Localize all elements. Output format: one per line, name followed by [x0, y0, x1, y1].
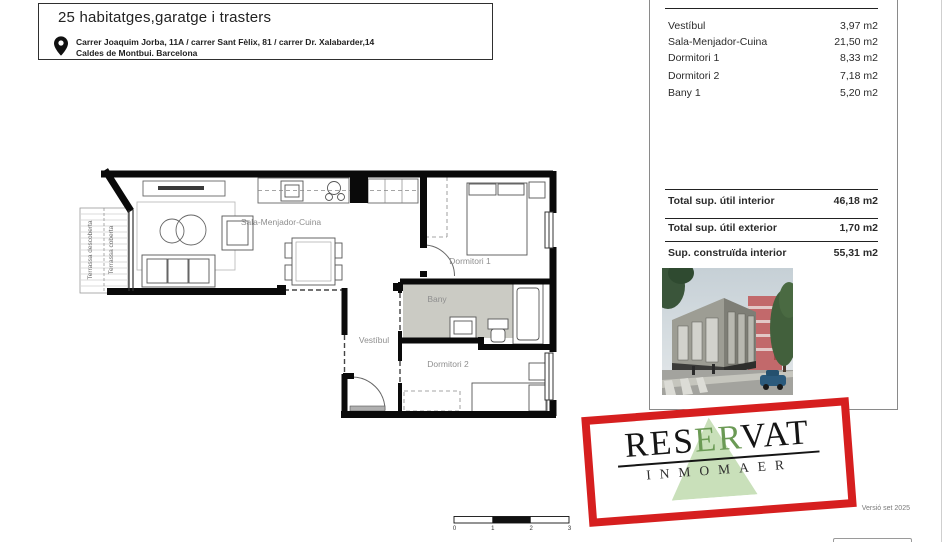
area-label: Sala-Menjador-Cuina — [668, 36, 767, 48]
area-value: 5,20 m2 — [840, 87, 878, 99]
rule-total-1 — [665, 189, 878, 190]
terrace: Terrassa descoberta Terrassa coberta — [80, 208, 128, 293]
total-value: 55,31 m2 — [834, 247, 878, 259]
rule-total-2 — [665, 218, 878, 219]
building-render-photo — [662, 268, 793, 395]
stamp-er: ER — [693, 417, 742, 459]
label-vestibul: Vestíbul — [359, 335, 389, 345]
area-value: 7,18 m2 — [840, 70, 878, 82]
bottom-corner-box — [833, 538, 912, 542]
dining-table — [285, 238, 342, 285]
rule-total-3 — [665, 241, 878, 242]
scale-bar: 0 1 2 3 — [453, 517, 572, 533]
stamp-vat: VAT — [739, 412, 811, 456]
label-terrassa-descoberta: Terrassa descoberta — [87, 220, 94, 279]
area-label: Vestíbul — [668, 20, 705, 32]
bedroom1-furniture — [425, 177, 545, 255]
area-row-dormitori2: Dormitori 2 7,18 m2 — [668, 70, 878, 82]
total-value: 1,70 m2 — [839, 222, 878, 234]
rule-top — [665, 8, 878, 9]
area-row-sala: Sala-Menjador-Cuina 21,50 m2 — [668, 36, 878, 48]
area-label: Dormitori 2 — [668, 70, 719, 82]
area-label: Bany 1 — [668, 87, 701, 99]
scale-0: 0 — [453, 526, 457, 532]
total-label: Sup. construïda interior — [668, 247, 786, 259]
total-value: 46,18 m2 — [834, 195, 878, 207]
label-terrassa-coberta: Terrassa coberta — [108, 225, 115, 274]
scale-2: 2 — [530, 526, 534, 532]
area-value: 8,33 m2 — [840, 52, 878, 64]
total-row-construida: Sup. construïda interior 55,31 m2 — [668, 247, 878, 259]
area-label: Dormitori 1 — [668, 52, 719, 64]
stamp-res: RES — [623, 421, 696, 465]
floorplan-document-page: 25 habitatges,garatge i trasters Carrer … — [0, 0, 948, 542]
area-value: 21,50 m2 — [834, 36, 878, 48]
label-dormitori2: Dormitori 2 — [427, 359, 469, 369]
page-edge-line — [941, 0, 942, 542]
area-row-bany1: Bany 1 5,20 m2 — [668, 87, 878, 99]
living-room-furniture — [137, 181, 253, 287]
total-row-interior: Total sup. útil interior 46,18 m2 — [668, 195, 878, 207]
area-row-dormitori1: Dormitori 1 8,33 m2 — [668, 52, 878, 64]
label-sala: Sala-Menjador-Cuina — [241, 217, 322, 227]
scale-1: 1 — [491, 526, 495, 532]
label-bany: Bany — [427, 294, 447, 304]
reservat-stamp: RESERVAT INMOMAER — [581, 397, 856, 527]
total-row-exterior: Total sup. útil exterior 1,70 m2 — [668, 222, 878, 234]
scale-3: 3 — [568, 526, 572, 532]
label-dormitori1: Dormitori 1 — [449, 256, 491, 266]
area-value: 3,97 m2 — [840, 20, 878, 32]
bedroom2-furniture — [404, 363, 547, 413]
kitchen-counter — [258, 178, 418, 203]
total-label: Total sup. útil interior — [668, 195, 775, 207]
area-row-vestibul: Vestíbul 3,97 m2 — [668, 20, 878, 32]
total-label: Total sup. útil exterior — [668, 222, 777, 234]
